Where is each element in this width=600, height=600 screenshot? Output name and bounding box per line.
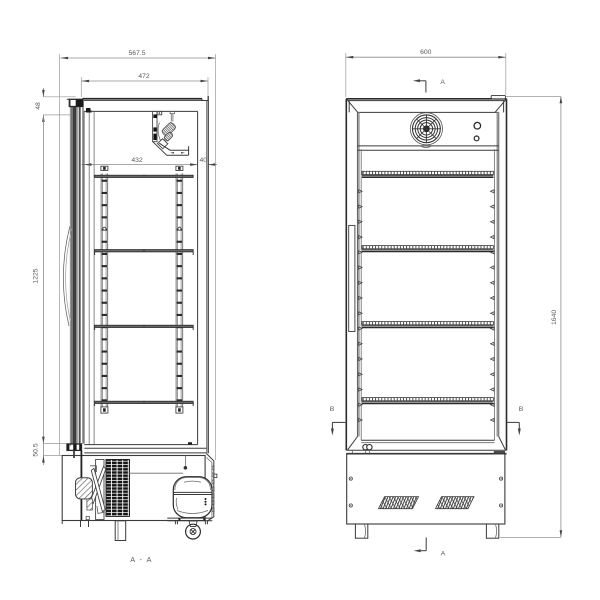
svg-text:567.5: 567.5 bbox=[128, 50, 145, 57]
svg-text:50.5: 50.5 bbox=[33, 443, 40, 456]
svg-text:B: B bbox=[330, 406, 335, 413]
svg-text:40: 40 bbox=[200, 157, 208, 164]
svg-text:472: 472 bbox=[138, 73, 150, 80]
svg-text:432: 432 bbox=[131, 157, 143, 164]
svg-text:B: B bbox=[519, 406, 524, 413]
svg-text:1640: 1640 bbox=[551, 310, 558, 325]
svg-text:A: A bbox=[440, 79, 445, 86]
svg-text:48: 48 bbox=[35, 102, 42, 110]
svg-text:600: 600 bbox=[420, 49, 432, 56]
svg-text:A: A bbox=[441, 551, 446, 558]
svg-text:A - A: A - A bbox=[130, 555, 153, 564]
svg-text:1225: 1225 bbox=[33, 268, 40, 283]
